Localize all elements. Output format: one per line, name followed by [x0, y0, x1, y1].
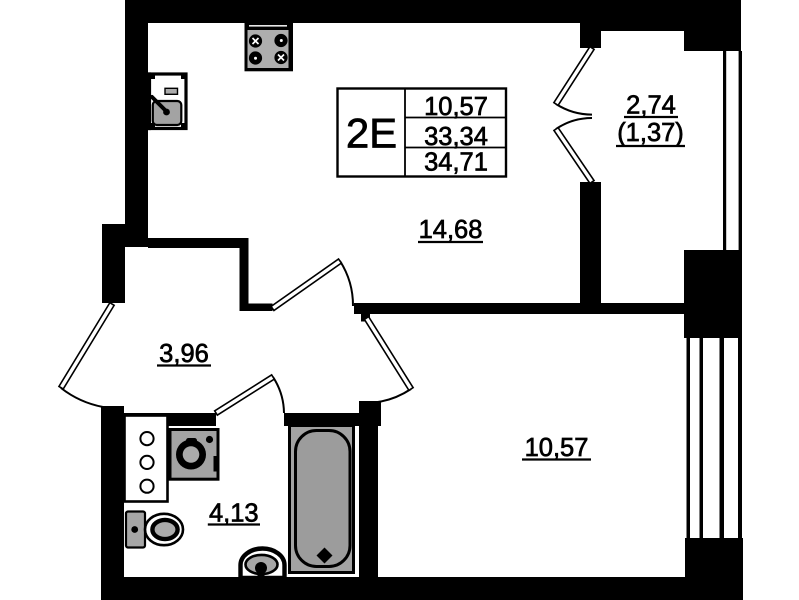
svg-text:14,68: 14,68: [419, 216, 483, 244]
svg-text:10,57: 10,57: [424, 93, 488, 121]
svg-text:2E: 2E: [346, 110, 397, 157]
svg-text:10,57: 10,57: [525, 434, 589, 462]
svg-text:3,96: 3,96: [159, 340, 209, 368]
svg-text:34,71: 34,71: [424, 149, 488, 177]
svg-text:2,74: 2,74: [626, 92, 676, 120]
svg-text:4,13: 4,13: [209, 500, 259, 528]
svg-text:33,34: 33,34: [424, 123, 488, 151]
svg-text:(1,37): (1,37): [617, 119, 684, 147]
